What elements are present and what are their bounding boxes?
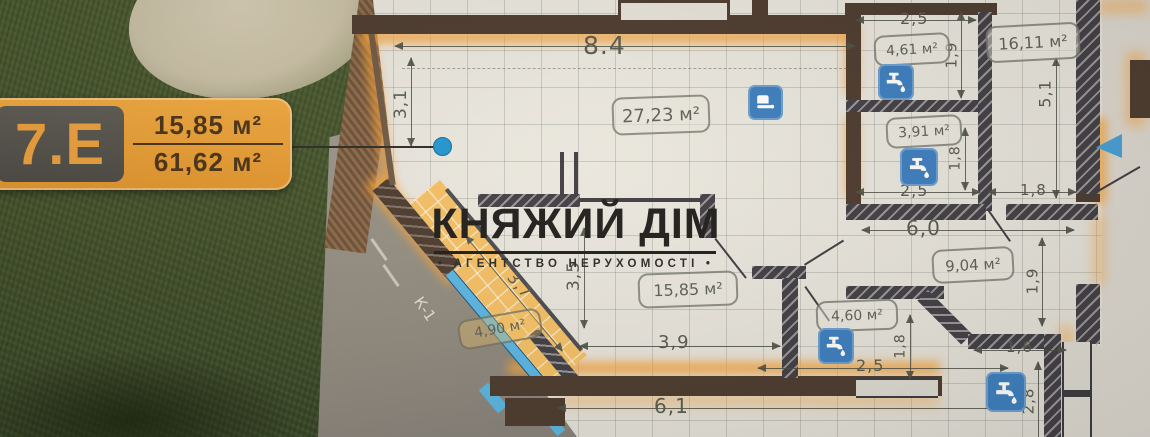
unit-living-area: 15,85 м² <box>154 110 262 141</box>
highlight-entry-2 <box>1094 214 1104 286</box>
unit-areas: 15,85 м² 61,62 м² <box>124 110 292 179</box>
highlight-tr-1 <box>1098 0 1148 13</box>
dim-left-height: 3,1 <box>411 58 412 146</box>
dim-neighbor-width-label: 1,6 <box>1006 338 1033 356</box>
dim-bath3-height-label: 1,8 <box>893 333 909 358</box>
dim-bath1-height: 1,9 <box>961 12 962 98</box>
dim-room-right-height: 5,1 <box>1056 58 1057 198</box>
dim-bath3-width-label: 2,5 <box>856 356 884 375</box>
window-bottom <box>856 378 938 398</box>
dim-left-height-label: 3,1 <box>391 89 411 119</box>
faucet-icon <box>878 64 914 100</box>
dim-bath2-height: 1,8 <box>965 128 966 190</box>
watermark-underline <box>434 251 716 254</box>
dim-room-right-width: 1,8 <box>988 192 1076 193</box>
dim-hall-height-label: 1,9 <box>1023 268 1041 295</box>
dim-bottom-width-label: 6,1 <box>654 394 689 418</box>
dim-hall-height: 1,9 <box>1042 238 1043 326</box>
dim-bath1-width-label: 2,5 <box>900 9 928 28</box>
room-label-bedroom: 15,85 м² <box>637 270 738 308</box>
door-frame-2 <box>574 152 578 196</box>
unit-total-area: 61,62 м² <box>154 147 262 178</box>
dim-room-right-width-label: 1,8 <box>1020 181 1047 199</box>
room-label-bath1: 4,61 м² <box>873 32 951 67</box>
wall-pillar <box>505 398 565 426</box>
badge-pointer-line <box>290 146 436 148</box>
partition-hall-north-b <box>1006 204 1098 220</box>
construction-line <box>402 68 847 69</box>
dim-bedroom-width: 3,9 <box>580 346 780 347</box>
faucet-icon <box>818 328 854 364</box>
dim-bath1-width: 2,5 <box>856 20 976 21</box>
room-label-bath2: 3,91 м² <box>885 114 963 149</box>
room-label-room-right: 16,11 м² <box>985 22 1081 64</box>
outside-area-bottom-right <box>1090 346 1150 437</box>
dim-top-width: 8.4 <box>395 46 855 47</box>
wall-far-right <box>1130 60 1150 118</box>
dim-hall-width: 6,0 <box>862 230 1074 231</box>
unit-number: 7.E <box>0 106 124 182</box>
room-label-hall: 9,04 м² <box>931 246 1015 284</box>
dim-room-right-height-label: 5,1 <box>1036 79 1055 107</box>
furniture-icon <box>748 85 783 120</box>
faucet-icon <box>900 148 938 186</box>
upper-niche-outline <box>618 0 730 20</box>
dim-bath3-height: 1,8 <box>910 315 911 379</box>
dim-bath2-width: 2,5 <box>856 192 980 193</box>
dim-hall-width-label: 6,0 <box>906 216 941 240</box>
dim-neighbor-width: 1,6 <box>974 350 1066 351</box>
watermark-title: КНЯЖИЙ ДІМ <box>428 200 724 249</box>
watermark-subtitle: • АГЕНТСТВО НЕРУХОМОСТІ • <box>430 258 722 270</box>
badge-divider <box>133 143 283 146</box>
dim-bath2-height-label: 1,8 <box>948 145 964 170</box>
dim-neighbor-height: 2,8 <box>1038 362 1039 437</box>
partition-baths <box>846 100 986 112</box>
dim-top-width-label: 8.4 <box>583 31 626 60</box>
wall-stub-top <box>752 0 768 16</box>
partition-bedroom-east <box>782 278 798 378</box>
room-label-living: 27,23 м² <box>611 94 710 135</box>
faucet-icon <box>986 372 1026 412</box>
unit-badge: 7.E 15,85 м² 61,62 м² <box>0 98 292 190</box>
window-mullion <box>1064 390 1090 397</box>
dim-bedroom-width-label: 3,9 <box>658 332 690 353</box>
floor-plan-photo: 8.4 2,5 2,5 1,8 6,0 3,9 2,5 6,1 1,6 3,1 … <box>0 0 1150 437</box>
dim-bath3-width: 2,5 <box>758 368 1008 369</box>
window-column-right <box>1062 342 1092 437</box>
wall-right-lower <box>1076 284 1100 344</box>
bush-shadow <box>0 350 300 437</box>
wall-right-outer <box>1076 0 1100 200</box>
dim-bottom-width: 6,1 <box>558 408 1018 409</box>
door-frame-1 <box>560 152 564 196</box>
location-dot-icon <box>433 137 452 156</box>
